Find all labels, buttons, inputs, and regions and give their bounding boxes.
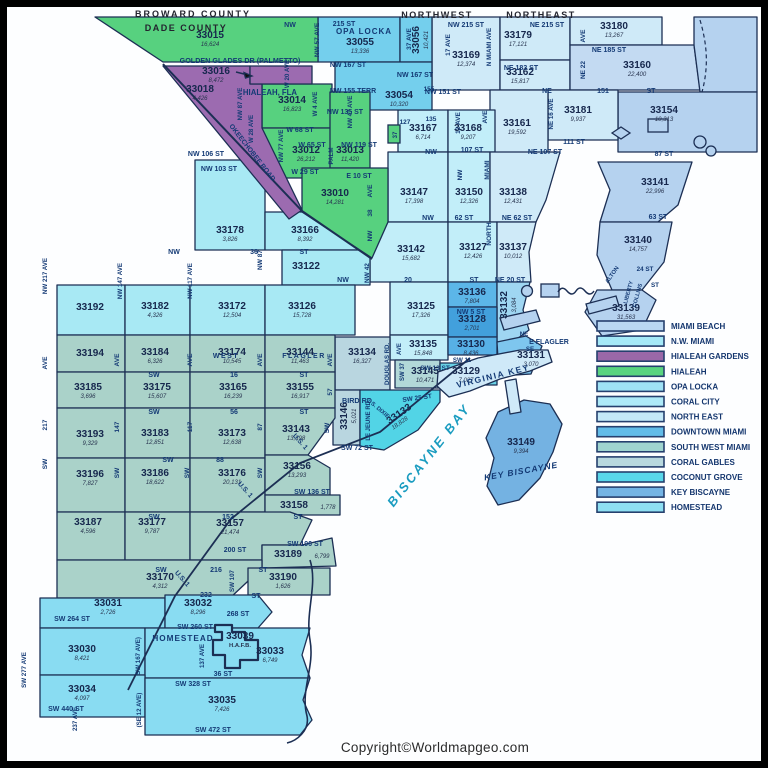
legend-label: COCONUT GROVE bbox=[671, 473, 743, 482]
svg-text:33189: 33189 bbox=[274, 549, 302, 560]
street-label: NORTHWEST bbox=[401, 10, 473, 20]
svg-text:33175: 33175 bbox=[143, 382, 171, 393]
street-label: 38 bbox=[367, 209, 374, 217]
svg-text:33156: 33156 bbox=[283, 461, 311, 472]
street-label: GOLDEN GLADES DR (PALMETTO) bbox=[180, 56, 301, 65]
svg-text:18,622: 18,622 bbox=[146, 480, 165, 486]
street-label: 232 bbox=[200, 592, 212, 599]
svg-text:22,996: 22,996 bbox=[645, 189, 665, 195]
street-label: 17 AVE bbox=[445, 34, 452, 56]
svg-text:15,817: 15,817 bbox=[511, 79, 530, 85]
street-label: NORTHEAST bbox=[506, 10, 576, 20]
svg-text:33160: 33160 bbox=[623, 60, 651, 71]
street-label: 137 AVE bbox=[199, 644, 206, 668]
street-label: SW bbox=[257, 467, 264, 478]
map-detail bbox=[694, 136, 706, 148]
zip-region-33016 bbox=[250, 66, 312, 84]
svg-text:33176: 33176 bbox=[218, 468, 246, 479]
street-label: NE bbox=[520, 331, 529, 338]
street-label: NW 103 ST bbox=[201, 166, 238, 173]
svg-text:7,426: 7,426 bbox=[214, 707, 230, 713]
street-label: BROWARD COUNTY bbox=[135, 9, 251, 19]
street-label: (SE 12 AVE) bbox=[136, 693, 143, 728]
street-label: AVE bbox=[327, 353, 334, 367]
legend-item-homestead: HOMESTEAD bbox=[597, 502, 722, 512]
zip-label-33122: 33122 bbox=[292, 261, 320, 272]
street-label: 268 ST bbox=[227, 611, 250, 618]
street-label: 147 bbox=[114, 421, 121, 432]
street-label: NW 135 ST bbox=[327, 109, 364, 116]
svg-text:33125: 33125 bbox=[407, 301, 435, 312]
svg-text:12,431: 12,431 bbox=[504, 199, 522, 205]
street-label: NW 47 AVE bbox=[347, 96, 354, 129]
svg-text:7,827: 7,827 bbox=[82, 481, 98, 487]
street-label: NW 5 ST bbox=[457, 309, 486, 316]
street-label: SW bbox=[148, 372, 160, 379]
street-label: SW bbox=[42, 458, 49, 469]
street-label: 88 bbox=[216, 457, 224, 464]
street-label: 62 ST bbox=[455, 215, 474, 222]
street-label: NE 215 ST bbox=[530, 22, 565, 29]
street-label: 63 ST bbox=[649, 214, 668, 221]
zip-label-33194: 33194 bbox=[76, 348, 104, 359]
svg-text:33126: 33126 bbox=[288, 301, 316, 312]
street-label: ST bbox=[300, 409, 310, 416]
street-label: NORTH bbox=[486, 222, 493, 245]
svg-text:33141: 33141 bbox=[641, 177, 669, 188]
street-label: 237 AVE bbox=[72, 707, 79, 731]
street-label: 56 bbox=[230, 409, 238, 416]
svg-text:33127: 33127 bbox=[459, 242, 487, 253]
street-label: 216 bbox=[210, 567, 222, 574]
legend-item-miami-beach: MIAMI BEACH bbox=[597, 321, 725, 331]
svg-text:33179: 33179 bbox=[504, 30, 532, 41]
svg-text:1,778: 1,778 bbox=[320, 505, 336, 511]
street-label: SW 472 ST bbox=[195, 727, 232, 734]
street-label: SW bbox=[162, 457, 174, 464]
street-label: 217 bbox=[42, 419, 49, 430]
street-label: SW 13 ST bbox=[420, 365, 450, 372]
svg-text:22,400: 22,400 bbox=[627, 72, 647, 78]
svg-text:33158: 33158 bbox=[280, 500, 308, 511]
street-label: NW 119 ST bbox=[341, 142, 378, 149]
svg-text:16,327: 16,327 bbox=[353, 359, 372, 365]
street-label: NW 87 bbox=[257, 250, 264, 270]
svg-text:33155: 33155 bbox=[286, 382, 314, 393]
street-label: 117 bbox=[187, 421, 194, 432]
zip-label-33039: 33039H.A.F.B. bbox=[226, 631, 254, 649]
street-label: E FLAGLER bbox=[529, 339, 569, 346]
street-label: 151 bbox=[597, 88, 609, 95]
street-label: SW 196 ST bbox=[287, 541, 324, 548]
street-label: NW 215 ST bbox=[448, 22, 485, 29]
svg-text:33147: 33147 bbox=[400, 187, 428, 198]
svg-text:12,374: 12,374 bbox=[457, 62, 476, 68]
street-label: 135 bbox=[426, 116, 437, 123]
svg-text:4,326: 4,326 bbox=[147, 313, 163, 319]
svg-text:11,420: 11,420 bbox=[341, 157, 360, 163]
street-label: SW 136 ST bbox=[294, 489, 331, 496]
street-label: NW bbox=[425, 149, 437, 156]
svg-text:33172: 33172 bbox=[218, 301, 246, 312]
street-label: SW bbox=[114, 467, 121, 478]
street-label: NW bbox=[457, 169, 464, 181]
svg-text:33130: 33130 bbox=[457, 339, 485, 350]
street-label: AVE bbox=[187, 353, 194, 367]
svg-text:9,787: 9,787 bbox=[144, 529, 160, 535]
street-label: NW bbox=[337, 277, 349, 284]
svg-text:33033: 33033 bbox=[256, 646, 284, 657]
svg-text:13,336: 13,336 bbox=[351, 49, 370, 55]
street-label: 152 bbox=[222, 514, 234, 521]
legend-swatch bbox=[597, 412, 664, 422]
svg-text:14,281: 14,281 bbox=[326, 200, 344, 206]
street-label: HOMESTEAD bbox=[152, 634, 213, 643]
svg-text:3,084: 3,084 bbox=[512, 297, 518, 313]
street-label: AVE bbox=[114, 353, 121, 367]
street-label: 12 AVE bbox=[455, 112, 462, 134]
svg-text:4,596: 4,596 bbox=[80, 529, 96, 535]
legend-label: MIAMI BEACH bbox=[671, 322, 725, 331]
svg-text:33055: 33055 bbox=[346, 37, 374, 48]
legend-label: KEY BISCAYNE bbox=[671, 488, 731, 497]
street-label: NW bbox=[284, 22, 296, 29]
map-detail bbox=[706, 146, 716, 156]
street-label: 24 ST bbox=[637, 266, 654, 273]
map-detail bbox=[558, 288, 594, 294]
svg-text:33136: 33136 bbox=[458, 287, 486, 298]
street-label: NW 167 ST bbox=[397, 72, 434, 79]
svg-text:33166: 33166 bbox=[291, 225, 319, 236]
street-label: 111 ST bbox=[563, 139, 586, 146]
svg-text:10,421: 10,421 bbox=[424, 31, 430, 49]
svg-text:33016: 33016 bbox=[202, 66, 230, 77]
zip-region-33154 bbox=[618, 92, 757, 152]
svg-text:33039: 33039 bbox=[226, 631, 254, 642]
street-label: NE 107 ST bbox=[528, 149, 563, 156]
svg-text:33186: 33186 bbox=[141, 468, 169, 479]
street-label: NW 117 AVE bbox=[187, 263, 194, 299]
street-label: W 4 AVE bbox=[312, 92, 319, 117]
street-label: WEST bbox=[213, 353, 239, 360]
street-label: 37 AVE bbox=[406, 28, 413, 50]
svg-text:33154: 33154 bbox=[650, 105, 678, 116]
street-label: PALM bbox=[328, 147, 335, 164]
legend-item-coral-gables: CORAL GABLES bbox=[597, 457, 736, 467]
svg-text:12,426: 12,426 bbox=[464, 254, 483, 260]
svg-text:33122: 33122 bbox=[292, 261, 320, 272]
street-label: 107 ST bbox=[461, 147, 484, 154]
street-label: NW 42 bbox=[364, 263, 371, 283]
svg-text:9,207: 9,207 bbox=[460, 135, 476, 141]
street-label: SW 107 bbox=[229, 569, 236, 592]
street-label: AVE bbox=[257, 353, 264, 367]
street-label: ST bbox=[651, 282, 659, 289]
svg-text:33146: 33146 bbox=[339, 402, 350, 430]
svg-text:10,313: 10,313 bbox=[655, 117, 674, 123]
legend-swatch bbox=[597, 321, 664, 331]
svg-text:33187: 33187 bbox=[74, 517, 102, 528]
svg-text:33165: 33165 bbox=[219, 382, 247, 393]
svg-text:6,799: 6,799 bbox=[314, 554, 330, 560]
legend-label: NORTH EAST bbox=[671, 413, 723, 422]
street-label: ST bbox=[294, 514, 304, 521]
street-label: SW bbox=[148, 514, 160, 521]
svg-text:33196: 33196 bbox=[76, 469, 104, 480]
street-label: 37 bbox=[393, 131, 399, 138]
svg-text:15,607: 15,607 bbox=[148, 394, 167, 400]
legend-label: HIALEAH bbox=[671, 367, 707, 376]
svg-text:17,121: 17,121 bbox=[509, 42, 527, 48]
street-label: NE 185 ST bbox=[592, 47, 627, 54]
svg-text:16,823: 16,823 bbox=[283, 107, 302, 113]
street-label: HIALEAH, FLA bbox=[243, 88, 298, 97]
svg-text:12,638: 12,638 bbox=[223, 440, 242, 446]
legend-label: OPA LOCKA bbox=[671, 382, 718, 391]
street-label: FLAGLER bbox=[282, 353, 326, 360]
svg-text:19,592: 19,592 bbox=[508, 130, 527, 136]
legend-label: HOMESTEAD bbox=[671, 503, 722, 512]
svg-text:33150: 33150 bbox=[455, 187, 483, 198]
street-label: DADE COUNTY bbox=[145, 23, 228, 33]
street-label: DOUGLAS RD. bbox=[385, 343, 391, 385]
street-label: 155 bbox=[424, 86, 435, 93]
legend-item-key-biscayne: KEY BISCAYNE bbox=[597, 487, 731, 497]
svg-text:33185: 33185 bbox=[74, 382, 102, 393]
legend-item-opa-locka: OPA LOCKA bbox=[597, 381, 718, 391]
svg-text:7,804: 7,804 bbox=[464, 299, 480, 305]
legend-item-hialeah-gardens: HIALEAH GARDENS bbox=[597, 351, 749, 361]
legend-item-coconut-grove: COCONUT GROVE bbox=[597, 472, 743, 482]
legend-item-downtown-miami: DOWNTOWN MIAMI bbox=[597, 427, 746, 437]
svg-text:4,426: 4,426 bbox=[192, 96, 208, 102]
svg-text:5,021: 5,021 bbox=[352, 408, 358, 423]
street-label: NW bbox=[367, 230, 374, 242]
street-label: 200 ST bbox=[224, 547, 247, 554]
legend-label: SOUTH WEST MIAMI bbox=[671, 443, 750, 452]
street-label: AVE bbox=[42, 356, 49, 370]
street-label: NE 183 ST bbox=[504, 65, 539, 72]
street-label: ST bbox=[300, 249, 310, 256]
svg-text:9,937: 9,937 bbox=[570, 117, 586, 123]
legend: MIAMI BEACHN.W. MIAMIHIALEAH GARDENSHIAL… bbox=[597, 321, 750, 512]
street-label: 87 bbox=[257, 423, 264, 431]
svg-text:33054: 33054 bbox=[385, 90, 413, 101]
street-label: SW 37 bbox=[400, 362, 406, 381]
svg-text:13,293: 13,293 bbox=[288, 473, 307, 479]
street-label: 20 bbox=[404, 277, 412, 284]
svg-text:33194: 33194 bbox=[76, 348, 104, 359]
svg-text:15,848: 15,848 bbox=[414, 351, 433, 357]
svg-text:1,626: 1,626 bbox=[275, 584, 291, 590]
street-label: SW bbox=[324, 422, 331, 433]
svg-text:15,682: 15,682 bbox=[402, 256, 421, 262]
street-label: SW 72 ST bbox=[341, 445, 374, 452]
street-label: W 20 AVE bbox=[284, 60, 291, 88]
svg-text:33034: 33034 bbox=[68, 684, 96, 695]
svg-text:15,728: 15,728 bbox=[293, 313, 312, 319]
svg-text:16,624: 16,624 bbox=[201, 42, 220, 48]
street-label: NE 22 bbox=[580, 61, 587, 79]
svg-text:10,012: 10,012 bbox=[504, 254, 523, 260]
street-label: ST bbox=[470, 277, 480, 284]
street-label: SW 440 ST bbox=[48, 706, 85, 713]
street-label: 87 ST bbox=[655, 151, 674, 158]
legend-swatch bbox=[597, 366, 664, 376]
svg-text:10,320: 10,320 bbox=[390, 102, 409, 108]
svg-text:4,097: 4,097 bbox=[74, 696, 90, 702]
street-label: SW 11 bbox=[453, 357, 472, 364]
svg-text:10,471: 10,471 bbox=[416, 378, 434, 384]
legend-swatch bbox=[597, 397, 664, 407]
svg-text:2,701: 2,701 bbox=[463, 326, 479, 332]
street-label: NW 106 ST bbox=[188, 151, 225, 158]
svg-text:17,326: 17,326 bbox=[412, 313, 431, 319]
legend-swatch bbox=[597, 442, 664, 452]
svg-text:33149: 33149 bbox=[507, 437, 535, 448]
street-label: NW bbox=[422, 215, 434, 222]
legend-swatch bbox=[597, 472, 664, 482]
legend-item-hialeah: HIALEAH bbox=[597, 366, 707, 376]
street-label: ST bbox=[252, 593, 262, 600]
street-label: SW bbox=[155, 567, 167, 574]
legend-label: N.W. MIAMI bbox=[671, 337, 714, 346]
svg-text:33010: 33010 bbox=[321, 188, 349, 199]
island-shape bbox=[694, 17, 757, 92]
street-label: SW 260 ST bbox=[177, 624, 214, 631]
street-label: SW 277 AVE bbox=[21, 652, 28, 688]
svg-text:33030: 33030 bbox=[68, 644, 96, 655]
legend-label: CORAL CITY bbox=[671, 398, 720, 407]
street-label: SW 328 ST bbox=[175, 681, 212, 688]
svg-text:31,563: 31,563 bbox=[617, 315, 636, 321]
svg-text:33137: 33137 bbox=[499, 242, 527, 253]
svg-text:21,474: 21,474 bbox=[220, 530, 240, 536]
svg-text:6,749: 6,749 bbox=[262, 658, 278, 664]
svg-text:33018: 33018 bbox=[186, 84, 214, 95]
svg-text:33169: 33169 bbox=[452, 50, 480, 61]
svg-text:33190: 33190 bbox=[269, 572, 297, 583]
svg-text:33173: 33173 bbox=[218, 428, 246, 439]
street-label: NW 147 AVE bbox=[117, 263, 124, 299]
street-label: AVE bbox=[397, 343, 403, 355]
street-label: SE bbox=[526, 346, 534, 353]
street-label: MIAMI bbox=[484, 160, 491, 179]
legend-label: CORAL GABLES bbox=[671, 458, 736, 467]
svg-text:6,714: 6,714 bbox=[415, 135, 431, 141]
street-label: AVE bbox=[580, 29, 587, 43]
street-label: W 29 ST bbox=[291, 169, 319, 176]
street-label: NW 167 ST bbox=[330, 62, 367, 69]
svg-text:33032: 33032 bbox=[184, 598, 212, 609]
svg-text:33140: 33140 bbox=[624, 235, 652, 246]
street-label: 127 bbox=[400, 119, 411, 126]
street-label: SW 264 ST bbox=[54, 616, 91, 623]
svg-text:12,326: 12,326 bbox=[460, 199, 479, 205]
street-label: W 28 AVE bbox=[248, 115, 255, 143]
svg-text:6,326: 6,326 bbox=[147, 359, 163, 365]
street-label: NW bbox=[168, 249, 180, 256]
svg-text:33193: 33193 bbox=[76, 429, 104, 440]
map-detail bbox=[541, 284, 559, 297]
street-label: NW 155 TERR bbox=[330, 88, 376, 95]
svg-text:9,394: 9,394 bbox=[513, 449, 529, 455]
svg-text:33184: 33184 bbox=[141, 347, 169, 358]
legend-swatch bbox=[597, 487, 664, 497]
svg-text:16,917: 16,917 bbox=[291, 394, 310, 400]
legend-item-coral-city: CORAL CITY bbox=[597, 397, 720, 407]
svg-text:12,851: 12,851 bbox=[146, 440, 164, 446]
street-label: ST bbox=[259, 567, 269, 574]
svg-text:33178: 33178 bbox=[216, 225, 244, 236]
svg-text:9,329: 9,329 bbox=[82, 441, 98, 447]
svg-text:2,726: 2,726 bbox=[99, 610, 116, 616]
svg-text:33031: 33031 bbox=[94, 598, 122, 609]
svg-text:33192: 33192 bbox=[76, 302, 104, 313]
street-label: NW 57 AVE bbox=[314, 22, 321, 57]
street-label: NE bbox=[542, 88, 552, 95]
svg-text:8,392: 8,392 bbox=[297, 237, 313, 243]
street-label: NE 62 ST bbox=[502, 215, 533, 222]
zip-label-33192: 33192 bbox=[76, 302, 104, 313]
legend-item-n-w-miami: N.W. MIAMI bbox=[597, 336, 714, 346]
map-stage: 3316912,3743317917,1213318013,2673316215… bbox=[0, 0, 768, 768]
street-label: NW 217 AVE bbox=[42, 258, 49, 294]
legend-swatch bbox=[597, 427, 664, 437]
legend-swatch bbox=[597, 351, 664, 361]
svg-text:33181: 33181 bbox=[564, 105, 592, 116]
svg-text:4,312: 4,312 bbox=[152, 584, 168, 590]
svg-text:33167: 33167 bbox=[409, 123, 437, 134]
svg-text:8,296: 8,296 bbox=[190, 610, 206, 616]
street-label: E 10 ST bbox=[346, 173, 372, 180]
svg-text:26,212: 26,212 bbox=[296, 157, 316, 163]
svg-text:17,398: 17,398 bbox=[405, 199, 424, 205]
street-label: SW bbox=[148, 409, 160, 416]
svg-text:33182: 33182 bbox=[141, 301, 169, 312]
svg-text:33134: 33134 bbox=[348, 347, 376, 358]
svg-text:8,472: 8,472 bbox=[208, 78, 224, 84]
street-label: W 68 ST bbox=[286, 127, 314, 134]
street-label: OPA LOCKA bbox=[336, 27, 392, 36]
legend-item-north-east: NORTH EAST bbox=[597, 412, 723, 422]
svg-text:33142: 33142 bbox=[397, 244, 425, 255]
street-label: SW 167 AVE) bbox=[135, 637, 142, 675]
svg-text:33161: 33161 bbox=[503, 118, 531, 129]
svg-text:16,239: 16,239 bbox=[224, 394, 243, 400]
street-label: AVE bbox=[482, 110, 489, 124]
svg-text:12,504: 12,504 bbox=[223, 313, 242, 319]
map-detail bbox=[522, 286, 533, 297]
miami-zip-code-map: 3316912,3743317917,1213318013,2673316215… bbox=[0, 0, 768, 768]
legend-swatch bbox=[597, 502, 664, 512]
svg-text:14,757: 14,757 bbox=[629, 247, 648, 253]
street-label: W 65 ST bbox=[298, 142, 326, 149]
street-label: ST bbox=[647, 88, 657, 95]
svg-text:33035: 33035 bbox=[208, 695, 236, 706]
svg-text:3,696: 3,696 bbox=[80, 394, 96, 400]
legend-label: HIALEAH GARDENS bbox=[671, 352, 749, 361]
svg-text:33132: 33132 bbox=[499, 291, 510, 319]
svg-text:33138: 33138 bbox=[499, 187, 527, 198]
copyright-text: Copyright©Worldmapgeo.com bbox=[290, 740, 580, 755]
street-label: 36 ST bbox=[214, 671, 233, 678]
svg-text:33135: 33135 bbox=[409, 339, 437, 350]
svg-text:33180: 33180 bbox=[600, 21, 628, 32]
legend-swatch bbox=[597, 457, 664, 467]
street-label: AVE bbox=[367, 184, 374, 198]
street-label: NW 77 AVE bbox=[278, 130, 285, 163]
